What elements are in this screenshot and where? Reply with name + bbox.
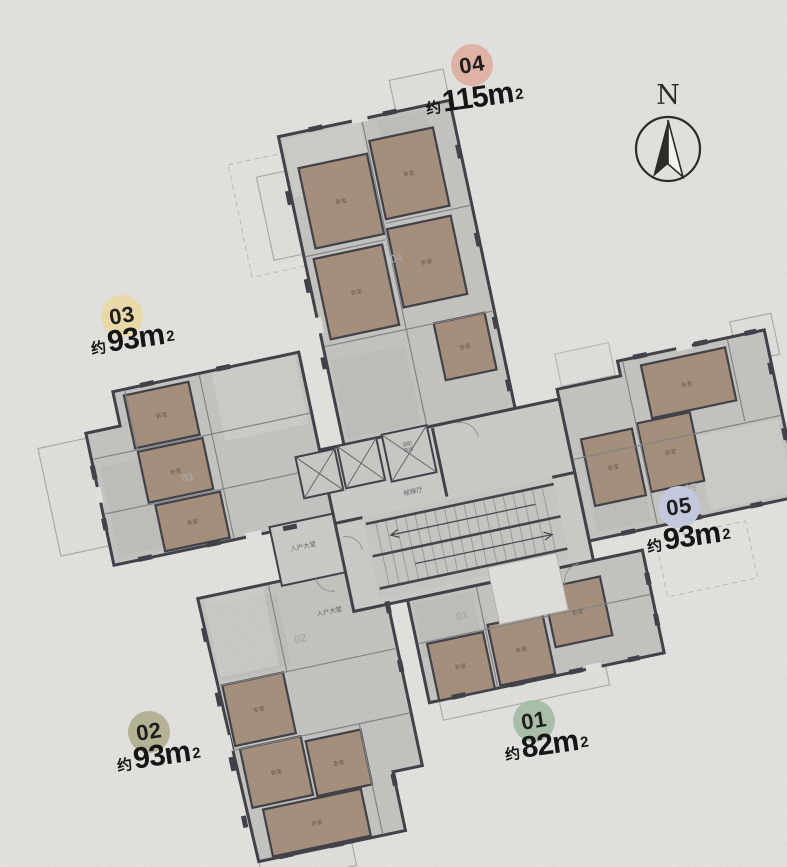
floor-plate-diagram: 候梯厅 入户大堂 入户大堂 消防 电梯 卧室 卧室 卧室 卧室 卧室 卧室 卧室…	[0, 0, 787, 867]
north-indicator: N	[628, 82, 708, 194]
north-arrow-icon	[628, 109, 708, 189]
north-label: N	[628, 82, 708, 109]
